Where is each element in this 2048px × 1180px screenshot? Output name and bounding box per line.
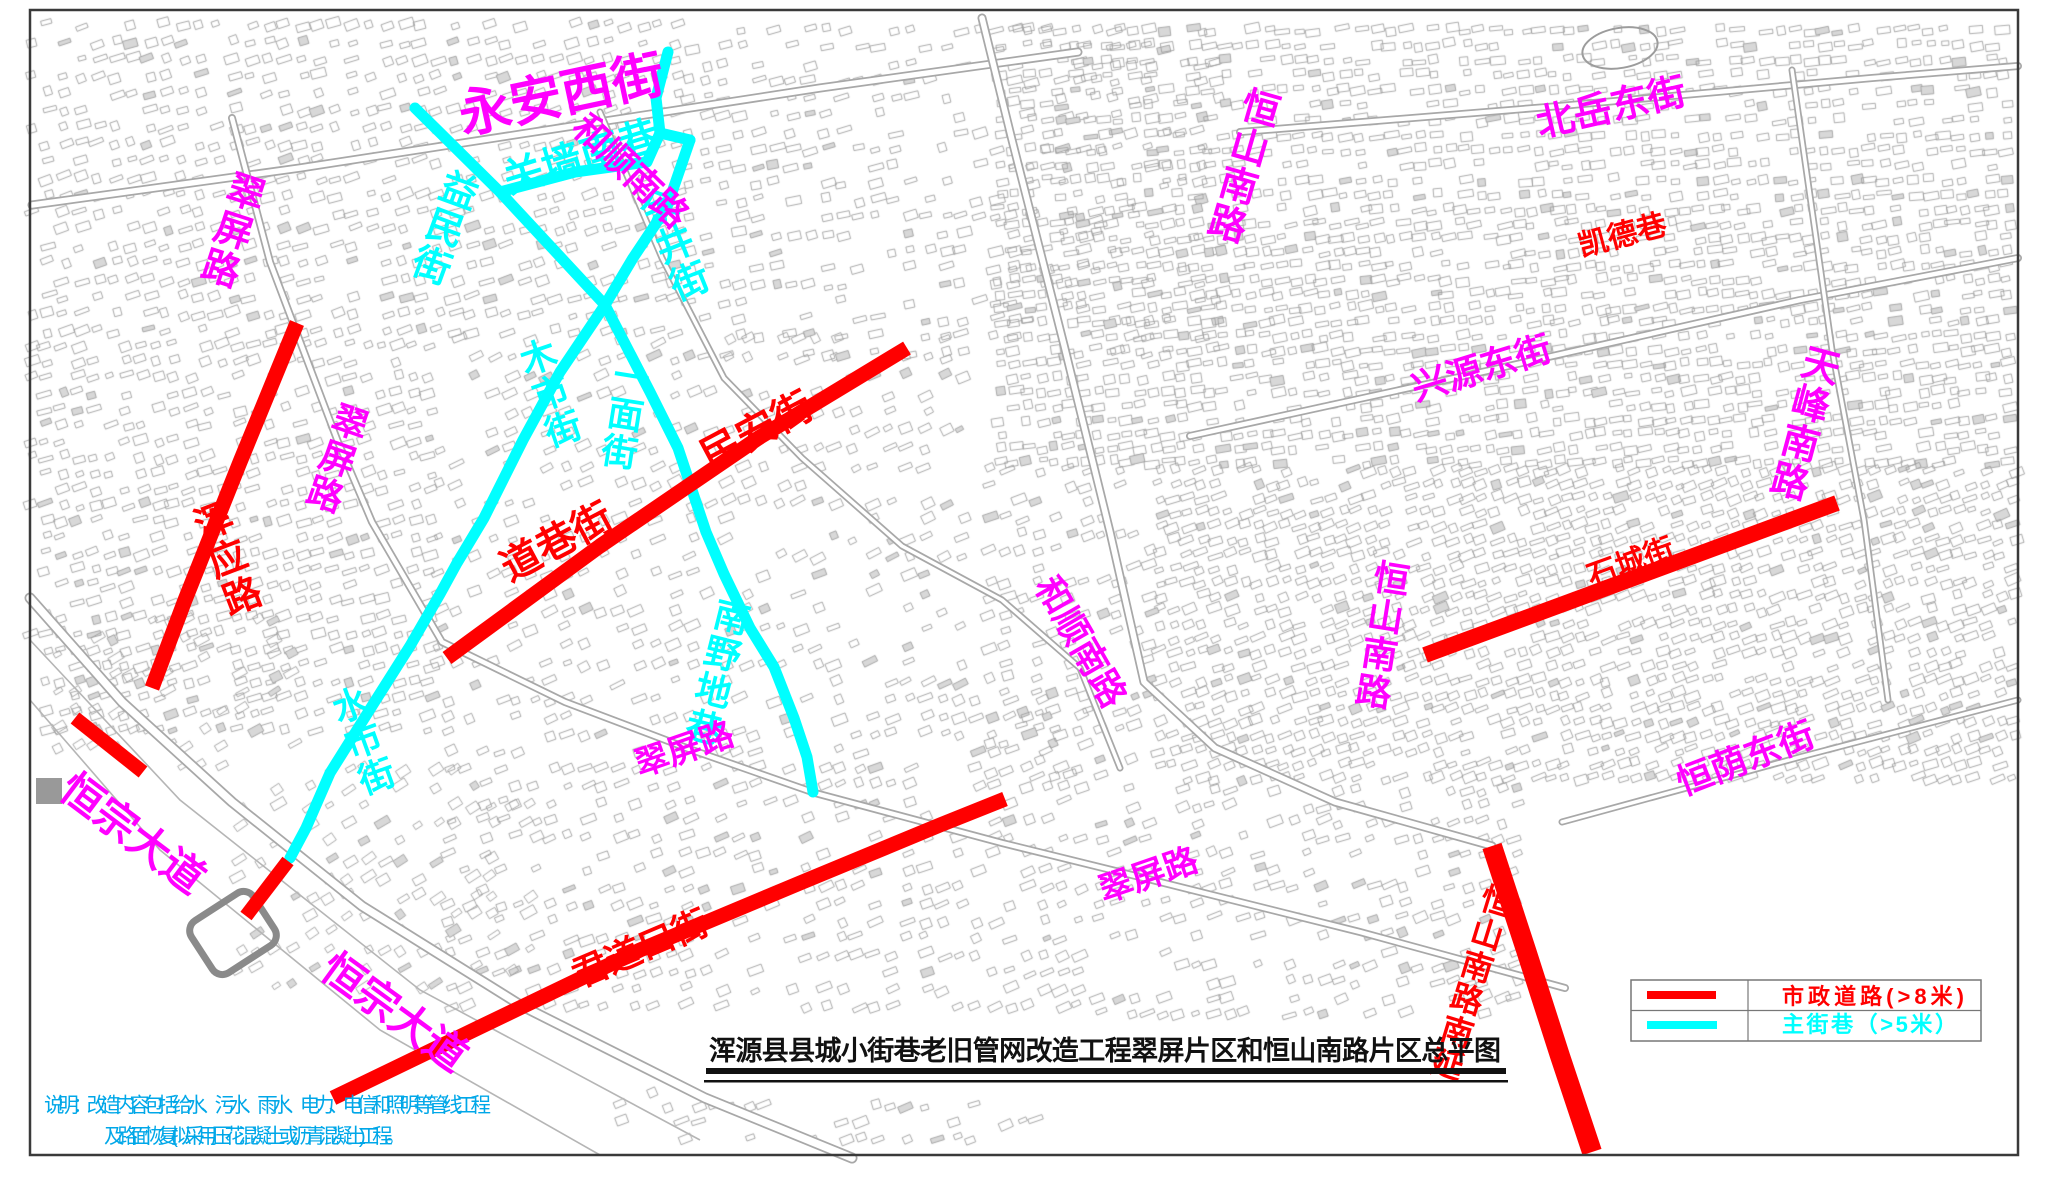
plan-canvas: 永安西街翠屏路关墙南巷益民街余井街和顺南路恒山南路北岳东街凯德巷兴源东街天峰南路… xyxy=(0,0,2048,1180)
street-label: 翠屏路 xyxy=(1094,841,1204,910)
legend-main-alley-sample xyxy=(1647,1021,1717,1029)
street-label: 凯德巷 xyxy=(1575,208,1671,263)
legend: 市政道路(>8米)主街巷（>5米） xyxy=(1631,980,1981,1041)
page-title: 浑源县县城小街巷老旧管网改造工程翠屏片区和恒山南路片区总平图 xyxy=(709,1035,1501,1066)
notes-line-1: 说明：改造内容包括给水、污水、雨水、电力、电信和照明等管线工程 xyxy=(44,1094,491,1117)
street-label: 兴源东街 xyxy=(1406,327,1556,408)
municipal-road xyxy=(447,348,907,658)
street-label: 恒荫东街 xyxy=(1671,713,1820,803)
title-underline-thick xyxy=(706,1068,1506,1074)
title-block: 浑源县县城小街巷老旧管网改造工程翠屏片区和恒山南路片区总平图 xyxy=(704,1035,1508,1083)
legend-municipal-road-sample xyxy=(1647,991,1716,999)
street-label: 益民街 xyxy=(401,163,484,291)
street-label: 恒山南路 xyxy=(1348,556,1412,713)
street-label: 天峰南路 xyxy=(1760,340,1844,506)
street-label: 一面街 xyxy=(594,355,653,474)
pond-outline xyxy=(185,887,281,979)
stadium-oval xyxy=(1579,22,1661,75)
legend-municipal-road-label: 市政道路(>8米) xyxy=(1782,984,1964,1009)
street-label: 民安街 xyxy=(694,384,821,479)
title-underline-thin xyxy=(704,1080,1508,1083)
street-label: 水市街 xyxy=(323,680,402,802)
street-label: 北岳东街 xyxy=(1533,71,1691,146)
notes-line-2: 及路面恢复(拟采用压花混凝土或沥青混凝土)工程。 xyxy=(104,1125,406,1148)
river-line xyxy=(30,700,600,1155)
street-label: 恒山南路 xyxy=(1198,82,1284,248)
street-label: 恒宗大道 xyxy=(51,764,213,903)
legend-main-alley-label: 主街巷（>5米） xyxy=(1782,1012,1957,1037)
street-label: 君道口街 xyxy=(566,901,715,995)
site-plan-map: 永安西街翠屏路关墙南巷益民街余井街和顺南路恒山南路北岳东街凯德巷兴源东街天峰南路… xyxy=(0,0,2048,1180)
notes-block: 说明：改造内容包括给水、污水、雨水、电力、电信和照明等管线工程及路面恢复(拟采用… xyxy=(44,1094,491,1148)
